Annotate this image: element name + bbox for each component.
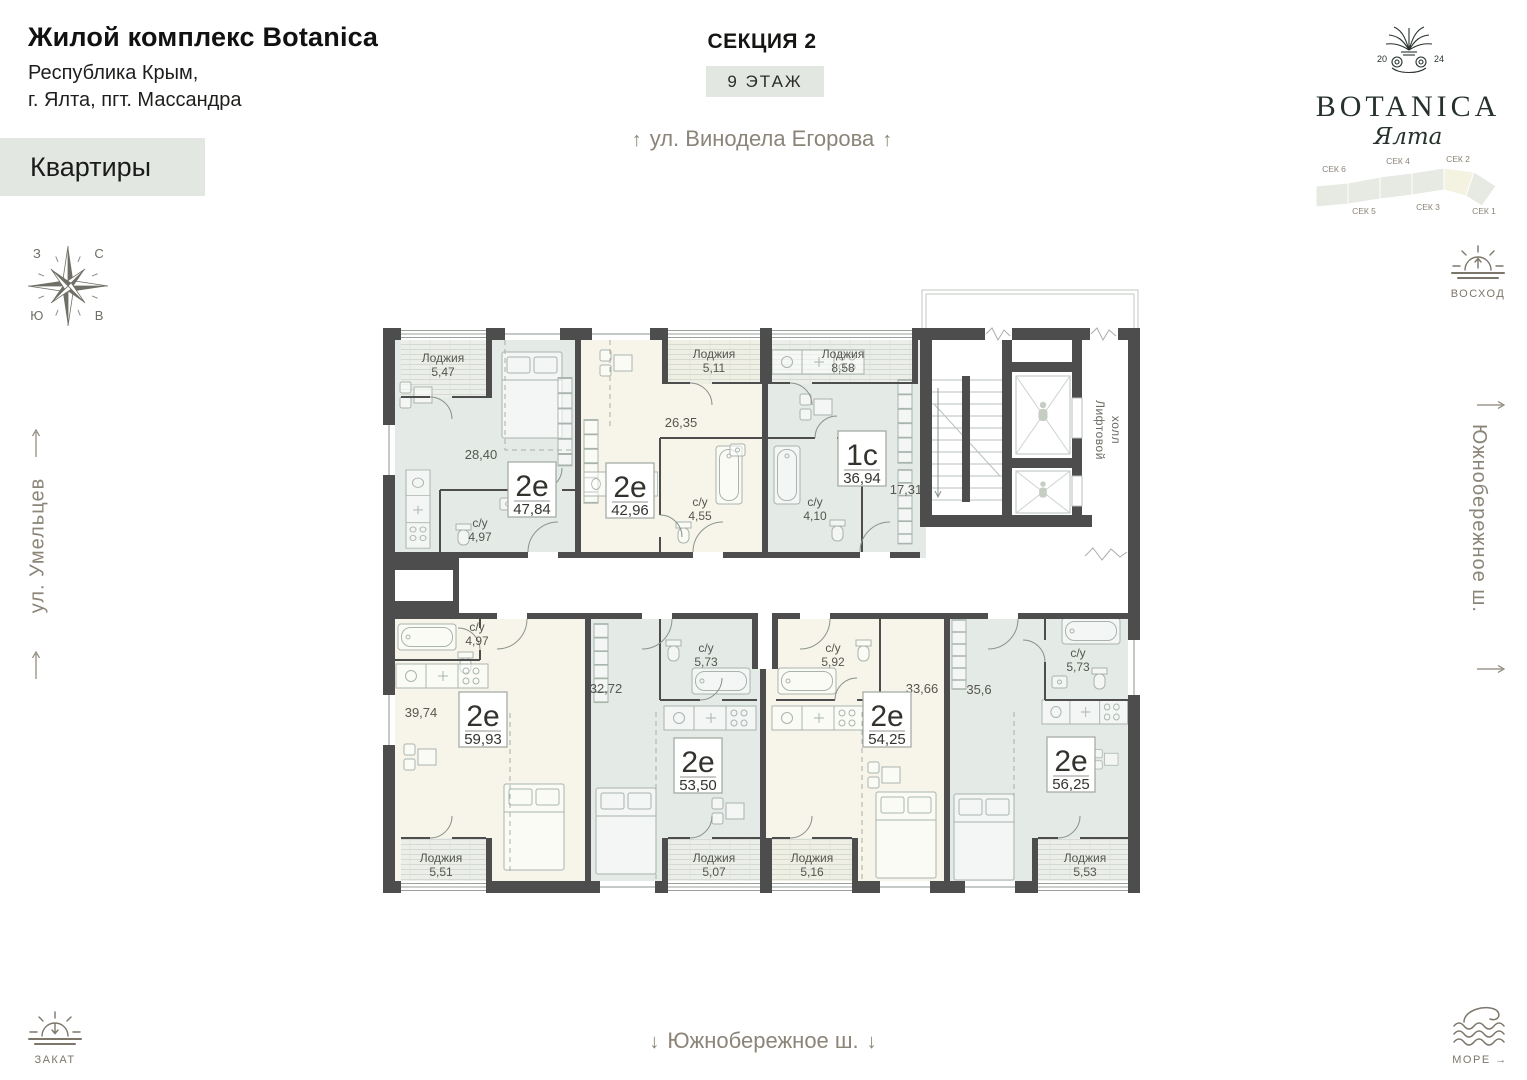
lift-hall-label: Лифтовой холл — [1093, 400, 1123, 460]
bottom-street-label: ↓Южнобережное ш.↓ — [563, 1028, 963, 1054]
svg-text:4,10: 4,10 — [803, 509, 827, 523]
svg-text:42,96: 42,96 — [611, 502, 649, 519]
apartment-badge-53-50[interactable]: 2е 53,50 — [674, 738, 722, 794]
svg-text:с/у: с/у — [1070, 646, 1085, 660]
left-street-label: ул. Умельцев — [27, 454, 50, 638]
down-arrow-icon: ↓ — [641, 1031, 667, 1053]
section-title: СЕКЦИЯ 2 — [612, 30, 912, 54]
svg-text:с/у: с/у — [472, 516, 487, 530]
street-arrow-icon — [31, 650, 41, 680]
room-area-label: 28,40 — [465, 447, 498, 462]
address: Республика Крым, г. Ялта, пгт. Массандра — [28, 60, 242, 114]
room-area-label: 39,74 — [405, 705, 438, 720]
sea-icon — [1446, 1002, 1512, 1052]
svg-text:5,92: 5,92 — [821, 655, 845, 669]
sunrise-label: ВОСХОД — [1438, 288, 1518, 300]
brand-city-script: Ялта — [1313, 124, 1503, 150]
svg-text:1с: 1с — [846, 439, 878, 472]
floor-selector[interactable]: 9 ЭТАЖ — [706, 66, 824, 97]
svg-text:Лоджия: Лоджия — [422, 351, 465, 365]
section-map-block-6[interactable] — [1316, 183, 1348, 207]
svg-text:4,97: 4,97 — [465, 634, 489, 648]
svg-text:с/у: с/у — [825, 641, 840, 655]
svg-text:54,25: 54,25 — [868, 731, 906, 748]
svg-text:5,07: 5,07 — [702, 865, 726, 879]
svg-text:Лоджия: Лоджия — [420, 851, 463, 865]
room-area-label: 35,6 — [966, 682, 991, 697]
svg-text:холл: холл — [1109, 416, 1123, 444]
svg-text:Лоджия: Лоджия — [791, 851, 834, 865]
sea-label: МОРЕ → — [1438, 1054, 1522, 1066]
compass-icon: С В З Ю — [20, 238, 116, 334]
svg-text:53,50: 53,50 — [679, 777, 717, 794]
svg-text:с/у: с/у — [698, 641, 713, 655]
svg-text:36,94: 36,94 — [843, 470, 881, 487]
apartment-badge-42-96[interactable]: 2е 42,96 — [606, 463, 654, 519]
svg-text:5,73: 5,73 — [694, 655, 718, 669]
svg-text:47,84: 47,84 — [513, 501, 551, 518]
svg-text:5,73: 5,73 — [1066, 660, 1090, 674]
sunset-icon — [21, 1006, 89, 1050]
sunset-label: ЗАКАТ — [15, 1054, 95, 1066]
logo-year-left: 20 — [1377, 54, 1387, 64]
down-arrow-icon: ↓ — [859, 1031, 885, 1053]
svg-text:5,47: 5,47 — [431, 365, 455, 379]
sunrise-icon — [1444, 240, 1512, 284]
svg-text:Лифтовой: Лифтовой — [1093, 400, 1107, 460]
floor-plan: 28,40 26,35 17,31 39,74 32,72 33,66 35,6… — [383, 285, 1140, 893]
svg-text:с/у: с/у — [469, 620, 484, 634]
svg-text:5,16: 5,16 — [800, 865, 824, 879]
elevator-icon — [1016, 376, 1070, 513]
room-area-label: 32,72 — [590, 681, 623, 696]
svg-text:5,53: 5,53 — [1073, 865, 1097, 879]
section-map-label: СЕК 5 — [1352, 206, 1376, 216]
svg-text:4,55: 4,55 — [688, 509, 712, 523]
compass-west-label: З — [33, 246, 41, 261]
compass-north-label: С — [94, 246, 103, 261]
right-street-label: Южнобережное ш. — [1467, 424, 1490, 660]
svg-text:59,93: 59,93 — [464, 731, 502, 748]
section-map-block-5[interactable] — [1348, 177, 1380, 204]
section-map: СЕК 6 СЕК 4 СЕК 2 СЕК 5 СЕК 3 СЕК 1 — [1310, 152, 1502, 216]
svg-text:5,11: 5,11 — [703, 361, 726, 375]
svg-text:Лоджия: Лоджия — [1064, 851, 1107, 865]
svg-text:Лоджия: Лоджия — [693, 347, 736, 361]
section-map-block-3[interactable] — [1412, 168, 1444, 195]
section-map-label: СЕК 6 — [1322, 164, 1346, 174]
svg-text:2е: 2е — [613, 471, 646, 504]
svg-text:2е: 2е — [870, 700, 903, 733]
svg-text:5,51: 5,51 — [429, 865, 453, 879]
section-map-label: СЕК 2 — [1446, 154, 1470, 164]
section-map-block-4[interactable] — [1380, 173, 1412, 199]
street-arrow-icon — [1476, 664, 1506, 674]
svg-text:56,25: 56,25 — [1052, 776, 1090, 793]
right-arrow-icon: → — [1495, 1054, 1508, 1066]
street-arrow-icon — [1476, 400, 1506, 410]
section-map-label: СЕК 1 — [1472, 206, 1496, 216]
apartments-button[interactable]: Квартиры — [0, 138, 205, 196]
svg-text:4,97: 4,97 — [468, 530, 492, 544]
svg-text:Лоджия: Лоджия — [693, 851, 736, 865]
svg-text:2е: 2е — [515, 470, 548, 503]
address-line2: г. Ялта, пгт. Массандра — [28, 87, 242, 114]
compass-south-label: Ю — [30, 308, 43, 323]
svg-text:2е: 2е — [466, 700, 499, 733]
roof-outline — [922, 290, 1138, 330]
apartment-badge-36-94[interactable]: 1с 36,94 — [838, 431, 886, 487]
floor-label: 9 ЭТАЖ — [727, 72, 802, 92]
page-title: Жилой комплекс Botanica — [28, 22, 378, 53]
room-area-label: 26,35 — [665, 415, 698, 430]
section-map-label: СЕК 3 — [1416, 202, 1440, 212]
logo-year-right: 24 — [1434, 54, 1444, 64]
apartment-badge-59-93[interactable]: 2е 59,93 — [459, 692, 507, 748]
apartments-button-label: Квартиры — [30, 152, 151, 183]
up-arrow-icon: ↑ — [874, 129, 900, 151]
section-map-label: СЕК 4 — [1386, 156, 1410, 166]
palmette-icon: 20 24 — [1370, 14, 1448, 86]
apartment-badge-47-84[interactable]: 2е 47,84 — [508, 462, 556, 518]
staircase — [932, 376, 1002, 502]
svg-text:2е: 2е — [1054, 745, 1087, 778]
apartment-badge-54-25[interactable]: 2е 54,25 — [863, 692, 911, 748]
svg-text:Лоджия: Лоджия — [822, 347, 865, 361]
street-top-label: ↑ул. Винодела Егорова↑ — [532, 126, 992, 152]
compass-east-label: В — [95, 308, 104, 323]
svg-text:8,58: 8,58 — [831, 361, 855, 375]
svg-text:с/у: с/у — [807, 495, 822, 509]
up-arrow-icon: ↑ — [624, 129, 650, 151]
address-line1: Республика Крым, — [28, 60, 242, 87]
svg-text:с/у: с/у — [692, 495, 707, 509]
room-area-label: 17,31 — [890, 482, 923, 497]
apartment-badge-56-25[interactable]: 2е 56,25 — [1047, 737, 1095, 793]
brand-name: BOTANICA — [1313, 90, 1503, 124]
svg-text:2е: 2е — [681, 746, 714, 779]
